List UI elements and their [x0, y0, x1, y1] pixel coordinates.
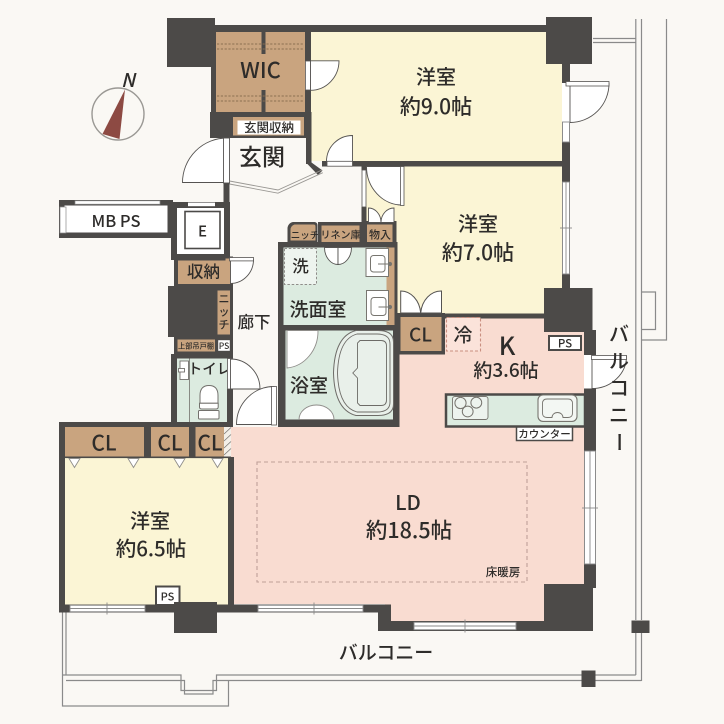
svg-text:冷: 冷 [453, 321, 472, 348]
svg-text:PS: PS [219, 340, 230, 352]
svg-text:収納: 収納 [187, 259, 220, 283]
svg-text:約7.0帖: 約7.0帖 [442, 237, 514, 267]
svg-text:CL: CL [157, 428, 183, 458]
svg-text:洋室: 洋室 [416, 61, 456, 90]
svg-text:ニ: ニ [609, 399, 629, 428]
svg-text:洋室: 洋室 [458, 208, 498, 237]
svg-text:バルコニー: バルコニー [339, 638, 434, 665]
svg-text:コ: コ [609, 372, 629, 401]
svg-text:ニッチ: ニッチ [291, 228, 320, 242]
svg-text:玄関: 玄関 [239, 138, 285, 172]
svg-text:MB PS: MB PS [92, 208, 141, 232]
svg-text:約18.5帖: 約18.5帖 [366, 514, 452, 545]
svg-text:CL: CL [197, 428, 223, 458]
svg-text:洗面室: 洗面室 [289, 295, 346, 322]
svg-text:WIC: WIC [240, 53, 281, 85]
svg-text:PS: PS [558, 336, 572, 352]
svg-text:洋室: 洋室 [130, 505, 170, 534]
svg-text:上部吊戸棚: 上部吊戸棚 [178, 342, 214, 352]
svg-text:床暖房: 床暖房 [486, 564, 521, 580]
svg-text:N: N [121, 66, 137, 93]
svg-text:物入: 物入 [369, 227, 391, 243]
svg-text:バ: バ [609, 318, 629, 347]
svg-text:廊下: 廊下 [238, 309, 271, 333]
svg-text:PS: PS [161, 589, 175, 605]
svg-text:チ: チ [219, 317, 230, 333]
svg-text:洗: 洗 [292, 253, 309, 277]
svg-text:約3.6帖: 約3.6帖 [473, 356, 538, 383]
svg-text:カウンター: カウンター [518, 427, 571, 442]
svg-text:ル: ル [609, 345, 629, 374]
svg-text:ー: ー [606, 432, 635, 452]
svg-text:玄関収納: 玄関収納 [244, 117, 294, 136]
svg-text:浴室: 浴室 [290, 371, 328, 398]
svg-text:トイレ: トイレ [188, 358, 232, 379]
svg-text:約6.5帖: 約6.5帖 [116, 532, 186, 562]
svg-text:LD: LD [395, 486, 421, 516]
svg-text:CL: CL [409, 321, 432, 348]
svg-text:約9.0帖: 約9.0帖 [400, 91, 472, 121]
svg-text:CL: CL [91, 428, 117, 458]
svg-text:E: E [198, 221, 207, 242]
svg-text:リネン庫: リネン庫 [321, 227, 361, 242]
